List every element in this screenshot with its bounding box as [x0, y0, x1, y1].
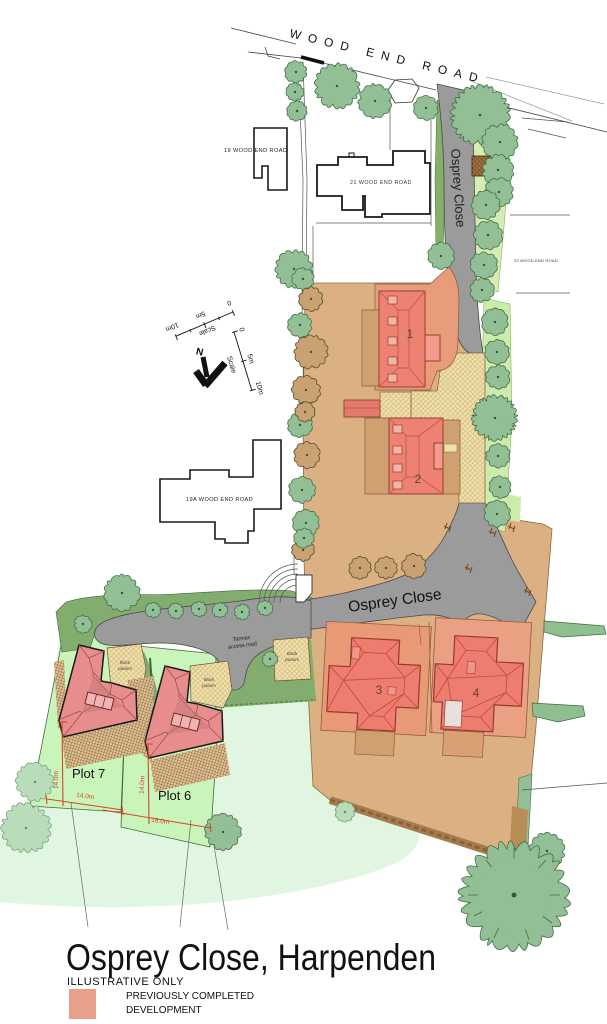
svg-text:Plot 6: Plot 6 — [158, 788, 191, 803]
svg-text:paviors: paviors — [202, 683, 216, 688]
svg-text:1: 1 — [407, 327, 414, 341]
svg-text:23 WOOD END ROAD: 23 WOOD END ROAD — [514, 258, 558, 263]
svg-text:Plot 7: Plot 7 — [72, 766, 105, 781]
svg-text:3: 3 — [376, 683, 383, 697]
svg-text:Block: Block — [287, 651, 298, 656]
svg-text:DEVELOPMENT: DEVELOPMENT — [126, 1005, 202, 1016]
svg-text:14.0m: 14.0m — [53, 771, 60, 789]
svg-text:PREVIOUSLY COMPLETED: PREVIOUSLY COMPLETED — [126, 991, 254, 1002]
svg-text:Osprey Close, Harpenden: Osprey Close, Harpenden — [66, 937, 436, 978]
svg-text:19 WOOD END ROAD: 19 WOOD END ROAD — [224, 148, 287, 154]
svg-text:4: 4 — [473, 686, 480, 700]
svg-text:paviors: paviors — [118, 666, 132, 671]
svg-text:14.0m: 14.0m — [139, 776, 147, 794]
svg-text:2: 2 — [415, 472, 422, 486]
svg-text:Block: Block — [204, 677, 215, 682]
svg-text:Block: Block — [120, 660, 131, 665]
svg-text:ILLUSTRATIVE ONLY: ILLUSTRATIVE ONLY — [67, 976, 184, 988]
svg-text:paviors: paviors — [285, 657, 299, 662]
svg-text:21 WOOD END ROAD: 21 WOOD END ROAD — [350, 180, 412, 186]
svg-text:19A WOOD END ROAD: 19A WOOD END ROAD — [186, 497, 253, 503]
